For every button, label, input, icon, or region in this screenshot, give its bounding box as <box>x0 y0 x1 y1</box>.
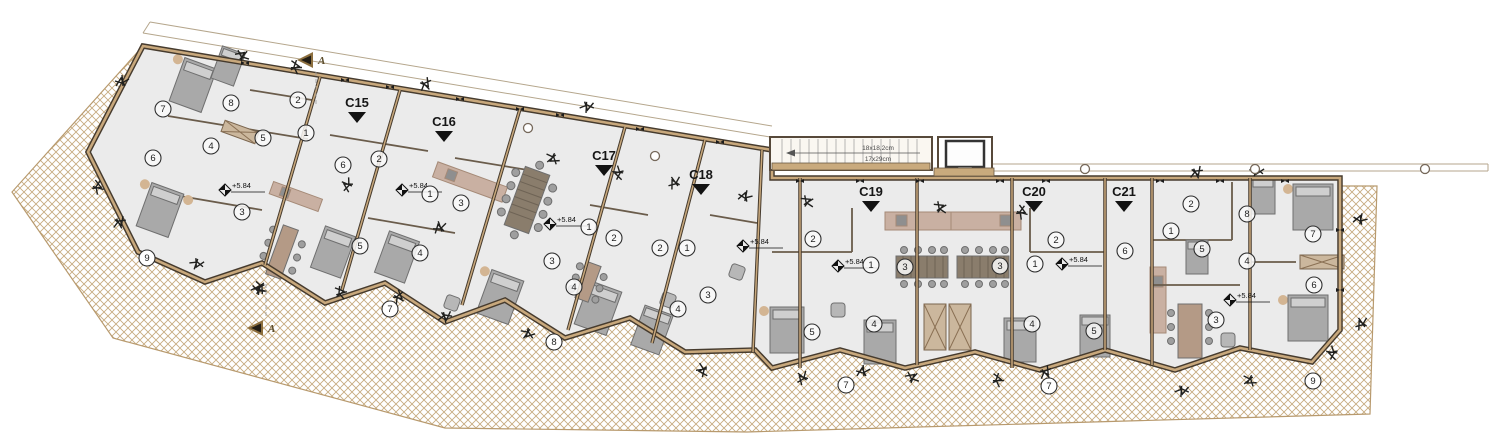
room-number-text: 5 <box>1091 326 1096 337</box>
room-number: 2 <box>1183 196 1199 212</box>
room-number: 6 <box>1306 277 1322 293</box>
unit-label-text: C16 <box>432 114 456 129</box>
room-number-text: 2 <box>1188 199 1193 210</box>
room-number-text: 2 <box>376 154 381 165</box>
room-number-text: 3 <box>1213 315 1218 326</box>
room-number-text: 1 <box>684 243 689 254</box>
room-number: 3 <box>897 259 913 275</box>
room-number-text: 8 <box>1244 209 1249 220</box>
room-number: 3 <box>234 204 250 220</box>
room-number: 4 <box>412 245 428 261</box>
room-number: 1 <box>1027 256 1043 272</box>
room-number-text: 4 <box>675 304 680 315</box>
wardrobe <box>949 304 971 350</box>
room-number-text: 6 <box>340 160 345 171</box>
section-label-text: A <box>267 323 275 335</box>
column <box>1081 165 1090 174</box>
terrace-number: 7 <box>838 377 854 393</box>
room-number: 5 <box>352 238 368 254</box>
room-number: 3 <box>544 253 560 269</box>
room-number-text: 1 <box>303 128 308 139</box>
unit-label-text: C21 <box>1112 184 1136 199</box>
room-number-text: 1 <box>427 189 432 200</box>
unit-label-text: C20 <box>1022 184 1046 199</box>
column <box>1421 165 1430 174</box>
room-number: 6 <box>335 157 351 173</box>
room-number-text: 1 <box>586 222 591 233</box>
room-number: 6 <box>1117 243 1133 259</box>
room-number-text: 5 <box>260 133 265 144</box>
terrace-number-text: 8 <box>551 337 556 348</box>
room-number: 3 <box>992 258 1008 274</box>
unit-label-text: C15 <box>345 95 369 110</box>
room-number-text: 5 <box>809 327 814 338</box>
unit-label-text: C18 <box>689 167 713 182</box>
bed <box>1251 178 1275 214</box>
room-number: 4 <box>203 138 219 154</box>
room-number: 7 <box>155 101 171 117</box>
terrace-number: 7 <box>382 301 398 317</box>
room-number: 3 <box>1208 312 1224 328</box>
kitchen-counter <box>885 212 955 230</box>
elevation-value: +5.84 <box>750 237 769 246</box>
room-number-text: 6 <box>1122 246 1127 257</box>
room-number: 5 <box>1086 323 1102 339</box>
room-number: 2 <box>805 231 821 247</box>
room-number: 1 <box>422 186 438 202</box>
room-number-text: 2 <box>295 95 300 106</box>
room-number-text: 2 <box>611 233 616 244</box>
terrace-number-text: 7 <box>843 380 848 391</box>
room-number: 7 <box>1305 226 1321 242</box>
seat <box>1221 333 1235 347</box>
terrace-number-text: 9 <box>144 253 149 264</box>
terrace-number-text: 7 <box>1046 381 1051 392</box>
room-number-text: 4 <box>871 319 876 330</box>
room-number: 2 <box>1048 232 1064 248</box>
room-number: 1 <box>298 125 314 141</box>
wardrobe <box>924 304 946 350</box>
room-number-text: 4 <box>1244 256 1249 267</box>
room-number: 2 <box>652 240 668 256</box>
room-number: 5 <box>804 324 820 340</box>
room-number-text: 4 <box>1029 319 1034 330</box>
room-number: 2 <box>371 151 387 167</box>
elevation-value: +5.84 <box>1069 255 1088 264</box>
stair-block: 18x18,2cm 17x29cm <box>770 137 932 170</box>
room-number: 4 <box>1239 253 1255 269</box>
elevator <box>934 137 994 176</box>
room-number-text: 4 <box>571 282 576 293</box>
elevation-value: +5.84 <box>557 215 576 224</box>
room-number-text: 3 <box>239 207 244 218</box>
room-number: 2 <box>606 230 622 246</box>
room-number-text: 3 <box>902 262 907 273</box>
elevation-value: +5.84 <box>232 181 251 190</box>
room-number-text: 2 <box>657 243 662 254</box>
room-number: 8 <box>223 95 239 111</box>
terrace-number: 8 <box>546 334 562 350</box>
column <box>651 152 660 161</box>
stair-dim-line2: 17x29cm <box>865 156 891 163</box>
room-number-text: 6 <box>150 153 155 164</box>
room-number: 4 <box>670 301 686 317</box>
room-number: 5 <box>1194 241 1210 257</box>
column <box>524 124 533 133</box>
unit-label-text: C19 <box>859 184 883 199</box>
room-number-text: 2 <box>1053 235 1058 246</box>
room-number-text: 1 <box>1168 226 1173 237</box>
terrace-number-text: 9 <box>1310 376 1315 387</box>
room-number-text: 3 <box>997 261 1002 272</box>
elevation-value: +5.84 <box>845 257 864 266</box>
stair-sill <box>772 163 930 170</box>
room-number: 4 <box>566 279 582 295</box>
room-number-text: 8 <box>228 98 233 109</box>
room-number: 1 <box>1163 223 1179 239</box>
floor-plan-page: 18x18,2cm 17x29cm +5.84+5.84+5.84+5.84+5… <box>0 0 1500 445</box>
room-number-text: 1 <box>868 260 873 271</box>
terrace-number-text: 7 <box>387 304 392 315</box>
elevator-sill <box>934 168 994 176</box>
column <box>1251 165 1260 174</box>
room-number-text: 4 <box>208 141 213 152</box>
elevator-car <box>946 141 984 167</box>
room-number: 2 <box>290 92 306 108</box>
terrace-number: 9 <box>139 250 155 266</box>
room-number-text: 6 <box>1311 280 1316 291</box>
room-number: 4 <box>866 316 882 332</box>
room-number: 5 <box>255 130 271 146</box>
room-number-text: 7 <box>160 104 165 115</box>
section-label-text: A <box>317 55 325 67</box>
seat <box>831 303 845 317</box>
terrace-number: 7 <box>1041 378 1057 394</box>
room-number-text: 3 <box>549 256 554 267</box>
stair-dim-line1: 18x18,2cm <box>862 145 894 152</box>
unit-label-text: C17 <box>592 148 616 163</box>
room-number-text: 5 <box>357 241 362 252</box>
room-number: 4 <box>1024 316 1040 332</box>
room-number-text: 1 <box>1032 259 1037 270</box>
room-number: 6 <box>145 150 161 166</box>
room-number: 8 <box>1239 206 1255 222</box>
room-number-text: 2 <box>810 234 815 245</box>
room-number-text: 3 <box>705 290 710 301</box>
elevation-value: +5.84 <box>1237 291 1256 300</box>
room-number: 1 <box>581 219 597 235</box>
room-number: 3 <box>453 195 469 211</box>
room-number: 3 <box>700 287 716 303</box>
room-number: 1 <box>679 240 695 256</box>
room-number-text: 3 <box>458 198 463 209</box>
room-number-text: 4 <box>417 248 422 259</box>
room-number-text: 7 <box>1310 229 1315 240</box>
terrace-number: 9 <box>1305 373 1321 389</box>
floor-plan-svg: 18x18,2cm 17x29cm +5.84+5.84+5.84+5.84+5… <box>0 0 1500 445</box>
room-number: 1 <box>863 257 879 273</box>
room-number-text: 5 <box>1199 244 1204 255</box>
